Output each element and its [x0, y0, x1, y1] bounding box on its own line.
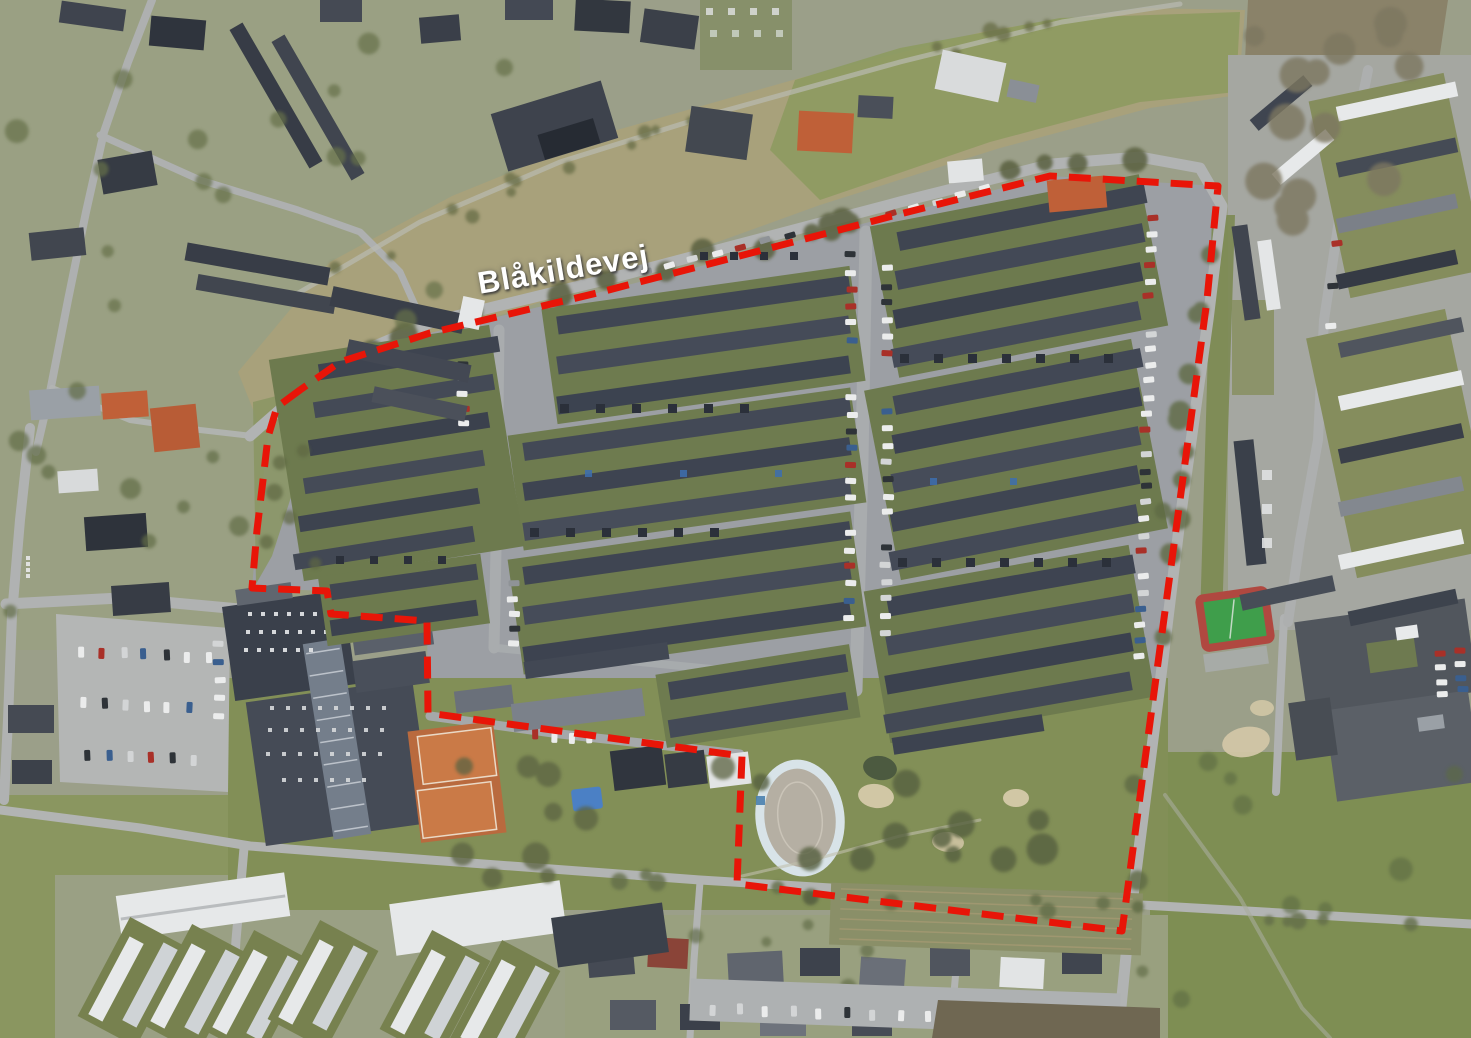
dot: [668, 404, 677, 413]
car: [191, 755, 197, 766]
car: [1138, 573, 1150, 580]
tree: [1269, 104, 1306, 141]
car: [144, 701, 150, 712]
dot: [1068, 558, 1077, 567]
tree: [5, 119, 29, 143]
house: [800, 948, 840, 976]
house: [149, 16, 206, 51]
car: [214, 695, 225, 701]
dot: [248, 612, 252, 616]
dot: [296, 648, 300, 652]
tree: [120, 478, 141, 499]
dot: [311, 630, 315, 634]
car: [1134, 637, 1146, 644]
tree: [1132, 901, 1144, 913]
car: [122, 700, 128, 711]
tree: [270, 111, 286, 127]
dot: [1000, 558, 1009, 567]
tree: [932, 828, 951, 847]
dot: [404, 556, 412, 564]
car: [845, 319, 856, 325]
tree: [996, 27, 1011, 42]
dot: [968, 354, 977, 363]
tree: [9, 431, 29, 451]
house: [930, 948, 970, 976]
tree: [1374, 7, 1407, 40]
car: [845, 394, 856, 400]
tree: [1155, 502, 1172, 519]
car: [883, 476, 894, 482]
car: [1141, 451, 1152, 457]
dot: [756, 796, 765, 805]
dot: [596, 404, 605, 413]
house: [111, 582, 171, 616]
car: [844, 548, 855, 554]
house: [685, 106, 753, 160]
tree: [1037, 155, 1053, 171]
car: [845, 270, 856, 276]
tree: [27, 445, 47, 465]
tree: [689, 929, 704, 944]
car: [845, 494, 856, 500]
dot: [1010, 478, 1017, 485]
car: [869, 1010, 875, 1021]
car: [1455, 661, 1466, 667]
dot: [261, 612, 265, 616]
dot: [302, 706, 306, 710]
car: [845, 530, 856, 536]
tree: [142, 534, 157, 549]
car: [509, 611, 520, 617]
car: [456, 391, 467, 397]
tree: [1282, 896, 1300, 914]
tree: [627, 141, 636, 150]
car: [881, 284, 892, 290]
tree: [1389, 857, 1413, 881]
dot: [585, 470, 592, 477]
car: [215, 677, 226, 683]
car: [1325, 323, 1336, 330]
house: [610, 1000, 656, 1030]
dot: [378, 752, 382, 756]
dot: [710, 528, 719, 537]
tennis-court-north: [417, 728, 496, 785]
car: [1436, 679, 1447, 685]
tree: [1024, 21, 1034, 31]
aerial-map: Blåkildevej: [0, 0, 1471, 1038]
car: [1135, 606, 1146, 613]
tree: [1224, 772, 1237, 785]
dot: [1104, 354, 1113, 363]
car: [121, 647, 127, 658]
dot: [732, 30, 739, 37]
car: [1139, 426, 1150, 432]
tree: [283, 510, 297, 524]
dot: [362, 778, 366, 782]
car: [1138, 590, 1149, 596]
tree: [563, 162, 576, 175]
car: [882, 333, 893, 339]
dot: [313, 612, 317, 616]
tree: [536, 762, 561, 787]
tree: [195, 173, 212, 190]
car: [106, 750, 112, 761]
dot: [1002, 354, 1011, 363]
tree: [108, 299, 121, 312]
tree: [496, 59, 513, 76]
tree: [1199, 753, 1218, 772]
tree: [991, 846, 1017, 872]
dot: [314, 752, 318, 756]
tree: [1446, 766, 1463, 783]
house-orange: [101, 390, 149, 419]
car: [1135, 547, 1146, 554]
car: [925, 1011, 931, 1022]
tree: [544, 803, 562, 821]
tree: [93, 162, 108, 177]
tennis-court-south: [417, 782, 496, 839]
tree: [207, 451, 220, 464]
car: [102, 698, 109, 709]
car: [164, 649, 170, 660]
dot: [309, 648, 313, 652]
dot: [740, 404, 749, 413]
dot: [318, 706, 322, 710]
tree: [893, 770, 920, 797]
dot: [282, 778, 286, 782]
house: [29, 227, 87, 261]
car: [1435, 664, 1446, 670]
tree: [753, 774, 770, 791]
car: [1141, 410, 1152, 416]
dot: [268, 728, 272, 732]
tree: [1404, 917, 1418, 931]
car: [709, 1005, 715, 1016]
car: [1147, 215, 1158, 222]
tree: [1040, 903, 1056, 919]
car: [762, 1006, 768, 1017]
car: [508, 640, 519, 646]
dot: [26, 562, 30, 566]
tree: [638, 125, 652, 139]
dot: [438, 556, 446, 564]
tree: [229, 516, 249, 536]
dot: [272, 630, 276, 634]
dot: [298, 752, 302, 756]
dot: [366, 706, 370, 710]
dot: [283, 648, 287, 652]
car: [843, 615, 854, 621]
tree: [351, 151, 366, 166]
car: [1133, 653, 1145, 660]
tree: [1245, 163, 1282, 200]
car: [213, 659, 224, 665]
car: [84, 750, 90, 761]
tree: [309, 557, 321, 569]
tree: [113, 70, 132, 89]
dot: [710, 30, 717, 37]
car: [1435, 650, 1446, 656]
tree: [1030, 894, 1042, 906]
tree: [522, 842, 549, 869]
map-building: [1288, 697, 1338, 760]
car: [1143, 395, 1154, 402]
car: [879, 562, 890, 568]
dot: [760, 252, 768, 260]
tree: [177, 501, 190, 514]
car: [1140, 469, 1151, 476]
dot: [370, 556, 378, 564]
dot: [270, 706, 274, 710]
dot: [316, 728, 320, 732]
dot: [284, 728, 288, 732]
dot: [362, 752, 366, 756]
dot: [1036, 354, 1045, 363]
house: [947, 159, 984, 184]
dot: [1102, 558, 1111, 567]
tree: [1068, 153, 1088, 173]
car: [881, 579, 892, 585]
car: [844, 251, 855, 257]
tree: [611, 873, 628, 890]
car: [1138, 533, 1149, 540]
car: [847, 286, 858, 292]
dot: [602, 528, 611, 537]
farmhouse-orange: [150, 404, 200, 453]
map-dots: [756, 796, 765, 805]
car: [1327, 283, 1338, 290]
car: [845, 303, 856, 309]
car: [847, 337, 858, 344]
tree: [482, 868, 502, 888]
dot: [350, 706, 354, 710]
barn: [84, 513, 148, 551]
dot: [1070, 354, 1079, 363]
car: [1455, 675, 1466, 681]
car: [163, 702, 169, 713]
tree: [803, 919, 814, 930]
car: [847, 412, 858, 418]
car: [844, 563, 855, 569]
dot: [298, 778, 302, 782]
dot: [346, 778, 350, 782]
dot: [730, 252, 738, 260]
car: [845, 462, 856, 468]
dot: [26, 556, 30, 560]
car: [1145, 246, 1156, 253]
car: [212, 641, 223, 647]
dot: [1034, 558, 1043, 567]
tree: [1264, 915, 1274, 925]
car: [1146, 331, 1157, 338]
house: [859, 956, 906, 989]
tree: [932, 42, 942, 52]
dot: [257, 648, 261, 652]
car: [882, 443, 893, 449]
house: [999, 957, 1045, 989]
car: [881, 299, 892, 305]
car: [883, 494, 894, 500]
dot: [26, 568, 30, 572]
dot: [259, 630, 263, 634]
house: [29, 386, 101, 421]
dot: [934, 354, 943, 363]
tree: [455, 757, 473, 775]
tree: [465, 210, 479, 224]
tree: [1274, 194, 1301, 221]
tree: [1395, 52, 1424, 81]
tree: [1282, 917, 1292, 927]
car: [880, 630, 891, 636]
tree: [517, 755, 540, 778]
car: [1144, 262, 1155, 269]
car: [880, 595, 891, 601]
car: [1134, 621, 1146, 628]
car: [737, 1003, 743, 1014]
car: [186, 702, 193, 713]
car: [880, 458, 891, 465]
car: [148, 752, 155, 763]
car: [882, 425, 893, 431]
tree: [273, 456, 287, 470]
tree: [41, 465, 55, 479]
dot: [282, 752, 286, 756]
dot: [300, 612, 304, 616]
dot: [754, 30, 761, 37]
dot: [298, 630, 302, 634]
tree: [328, 84, 341, 97]
car: [791, 1006, 797, 1017]
car: [881, 350, 892, 356]
tree: [948, 811, 975, 838]
car: [845, 580, 856, 587]
tree: [761, 937, 771, 947]
dot: [26, 574, 30, 578]
tree: [798, 847, 822, 871]
tree: [395, 309, 417, 331]
tree: [1007, 164, 1021, 178]
dot: [700, 252, 708, 260]
dot: [266, 752, 270, 756]
tree: [387, 251, 396, 260]
tree: [260, 535, 274, 549]
dot: [775, 470, 782, 477]
car: [815, 1008, 821, 1019]
dot: [530, 528, 539, 537]
tree: [329, 261, 341, 273]
car: [881, 544, 892, 550]
house: [12, 760, 52, 784]
dot: [286, 706, 290, 710]
dot: [1262, 470, 1272, 480]
car: [881, 408, 892, 415]
tree: [1027, 833, 1059, 865]
car: [1142, 292, 1153, 299]
car: [844, 1007, 850, 1018]
car: [1141, 482, 1152, 489]
car: [140, 648, 146, 659]
dot: [285, 630, 289, 634]
car: [1143, 376, 1154, 383]
dot: [364, 728, 368, 732]
dot: [348, 728, 352, 732]
car: [1457, 686, 1468, 692]
tree: [711, 755, 735, 779]
tree: [574, 806, 598, 830]
dot: [930, 478, 937, 485]
car: [169, 752, 175, 763]
car: [1146, 231, 1157, 237]
house: [574, 0, 631, 33]
dot: [728, 8, 735, 15]
tree: [504, 172, 516, 184]
dot: [772, 8, 779, 15]
car: [882, 264, 893, 270]
dot: [336, 556, 344, 564]
tree: [1130, 158, 1143, 171]
tree: [540, 868, 555, 883]
car: [880, 613, 891, 619]
dot: [382, 706, 386, 710]
dot: [776, 30, 783, 37]
tree: [188, 130, 208, 150]
car: [98, 648, 104, 659]
dot: [330, 778, 334, 782]
car: [882, 508, 893, 515]
car: [507, 596, 518, 602]
dot: [566, 528, 575, 537]
car: [184, 652, 190, 663]
tree: [883, 823, 909, 849]
dot: [704, 404, 713, 413]
car: [532, 728, 538, 739]
dot: [1262, 504, 1272, 514]
dot: [560, 404, 569, 413]
tree: [640, 869, 652, 881]
house: [8, 705, 54, 733]
tree: [1244, 26, 1264, 46]
tree: [1367, 162, 1401, 196]
tree: [1318, 902, 1332, 916]
car: [128, 751, 134, 762]
dot: [900, 354, 909, 363]
dot: [790, 252, 798, 260]
tree: [1043, 19, 1052, 28]
tree: [651, 125, 660, 134]
car: [1454, 647, 1465, 653]
car: [80, 697, 86, 708]
car: [845, 478, 856, 484]
dot: [300, 728, 304, 732]
field-se: [1150, 752, 1471, 1038]
dot: [750, 8, 757, 15]
tree: [102, 245, 114, 257]
dot: [380, 728, 384, 732]
kindergarten: [610, 745, 666, 791]
tree: [1028, 810, 1049, 831]
aerial-photo-canvas: [0, 0, 1471, 1038]
car: [846, 428, 857, 434]
dot: [632, 404, 641, 413]
sand-pit: [1003, 789, 1029, 807]
dot: [330, 752, 334, 756]
car: [1437, 691, 1448, 698]
sand-pit: [1250, 700, 1274, 716]
dot: [274, 612, 278, 616]
car: [508, 580, 519, 586]
car: [78, 647, 84, 658]
car: [213, 713, 224, 719]
